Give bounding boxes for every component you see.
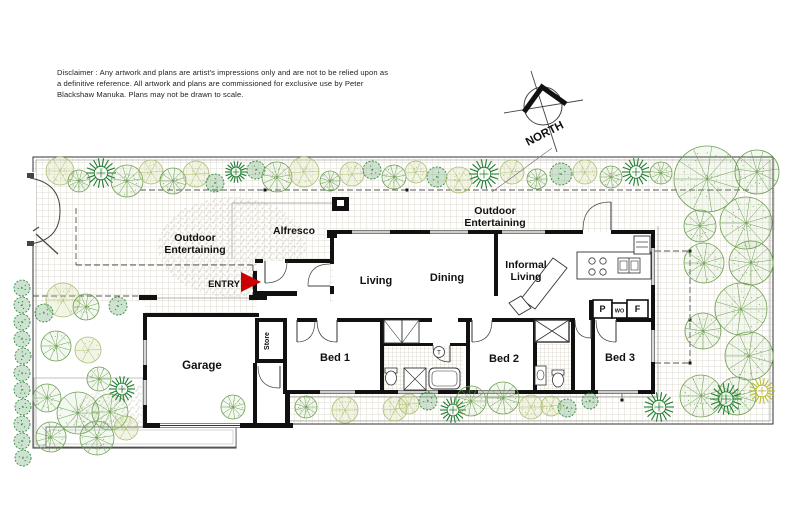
tree-icon [500, 160, 524, 184]
wall [330, 286, 334, 294]
wall [591, 318, 595, 394]
wall [390, 230, 430, 234]
tree-icon [14, 280, 30, 296]
tree-icon [340, 162, 364, 186]
wall [143, 313, 259, 317]
tree-icon [262, 162, 292, 192]
survey-dot [689, 362, 692, 365]
tree-icon [729, 241, 773, 285]
tree-icon [363, 161, 381, 179]
tree-icon [114, 416, 138, 440]
tree-icon [527, 169, 547, 189]
north-label: NORTH [524, 119, 566, 148]
tree-icon [15, 399, 31, 415]
room-floor [257, 261, 330, 316]
wall [545, 230, 583, 234]
entry-label: ENTRY [208, 279, 241, 290]
tree-icon [419, 392, 437, 410]
tree-icon [550, 163, 572, 185]
wall [297, 318, 317, 322]
tree-icon [139, 160, 163, 184]
wall [651, 234, 655, 248]
tree-icon [382, 165, 406, 189]
tree-icon [15, 450, 31, 466]
tree-icon [41, 331, 71, 361]
tree-icon [14, 297, 30, 313]
room-label-garage: Garage [182, 360, 222, 372]
tree-icon [558, 399, 576, 417]
wall [466, 320, 470, 392]
tree-icon [582, 393, 598, 409]
toilet-icon [386, 371, 397, 385]
tree-icon [75, 337, 101, 363]
tree-icon [33, 384, 61, 412]
tree-icon [735, 150, 779, 194]
wall [285, 390, 320, 394]
room-label-bed3: Bed 3 [605, 352, 635, 364]
tree-icon [109, 297, 127, 315]
site-plan-drawing: PWOFTGarageStoreBed 1Bed 2Bed 3LivingDin… [0, 0, 790, 527]
tree-icon [600, 166, 622, 188]
tree-icon [15, 348, 31, 364]
oven-tower-icon [634, 236, 650, 254]
wall [450, 343, 466, 346]
room-label-dining: Dining [430, 272, 464, 284]
tree-icon [541, 396, 561, 416]
wall [255, 318, 287, 322]
wall [283, 318, 287, 394]
tree-icon [427, 167, 447, 187]
tree-icon [14, 314, 30, 330]
tree-icon [206, 174, 224, 192]
tree-icon [725, 332, 773, 380]
room-label-bed2: Bed 2 [489, 353, 519, 365]
pantry-label: P [599, 304, 605, 314]
room-label-informal-living: InformalLiving [505, 259, 547, 283]
floor-plan-page: Disclaimer : Any artwork and plans are a… [0, 0, 790, 527]
wall [143, 313, 147, 428]
tree-icon [160, 168, 186, 194]
wall [515, 390, 598, 394]
tree-icon [405, 161, 427, 183]
wall [571, 322, 575, 392]
tree-icon [456, 386, 486, 416]
toilet-icon [553, 373, 564, 387]
wall [253, 363, 257, 423]
survey-dot [406, 189, 409, 192]
tree-icon [36, 422, 66, 452]
wall [468, 230, 502, 234]
wall [380, 320, 384, 392]
tree-icon [73, 294, 99, 320]
tree-icon [320, 171, 340, 191]
wall [257, 291, 297, 296]
tree-icon [111, 165, 143, 197]
tree-icon [446, 167, 472, 193]
wall [651, 285, 655, 330]
wall [330, 230, 334, 264]
tree-icon [399, 394, 419, 414]
basin-icon [535, 366, 546, 385]
trough-label: T [437, 351, 441, 357]
tree-icon [715, 283, 767, 335]
wall [651, 362, 655, 394]
wall [255, 318, 259, 363]
wall [255, 359, 287, 363]
tree-icon [87, 367, 111, 391]
wall [611, 230, 655, 234]
tree-icon [14, 382, 30, 398]
tree-icon [14, 365, 30, 381]
room-label-store: Store [264, 332, 271, 350]
tree-icon [332, 397, 358, 423]
tree-icon [14, 416, 30, 432]
wall-oven-label: WO [615, 308, 625, 314]
wall [285, 392, 290, 425]
survey-dot [621, 399, 624, 402]
tree-icon [685, 313, 721, 349]
tree-icon [519, 395, 543, 419]
room-label-bed1: Bed 1 [320, 352, 350, 364]
wall [285, 259, 330, 263]
tree-icon [221, 395, 245, 419]
tree-icon [35, 304, 53, 322]
tree-icon [289, 157, 319, 187]
tree-icon [573, 160, 597, 184]
tree-icon [650, 162, 672, 184]
wall [355, 390, 398, 394]
wall [383, 343, 433, 346]
tree-icon [680, 375, 722, 417]
wall [494, 234, 498, 296]
paved-area [145, 300, 257, 315]
room-label-living: Living [360, 275, 392, 287]
fridge-label: F [635, 304, 641, 314]
tree-icon [80, 421, 114, 455]
tree-icon [487, 382, 519, 414]
room-label-alfresco: Alfresco [273, 225, 315, 237]
tree-icon [295, 396, 317, 418]
tree-icon [183, 161, 209, 187]
tree-icon [14, 331, 30, 347]
tree-icon [684, 243, 724, 283]
survey-dot [264, 189, 267, 192]
tree-icon [14, 433, 30, 449]
wall [255, 259, 263, 263]
tree-icon [684, 210, 716, 242]
